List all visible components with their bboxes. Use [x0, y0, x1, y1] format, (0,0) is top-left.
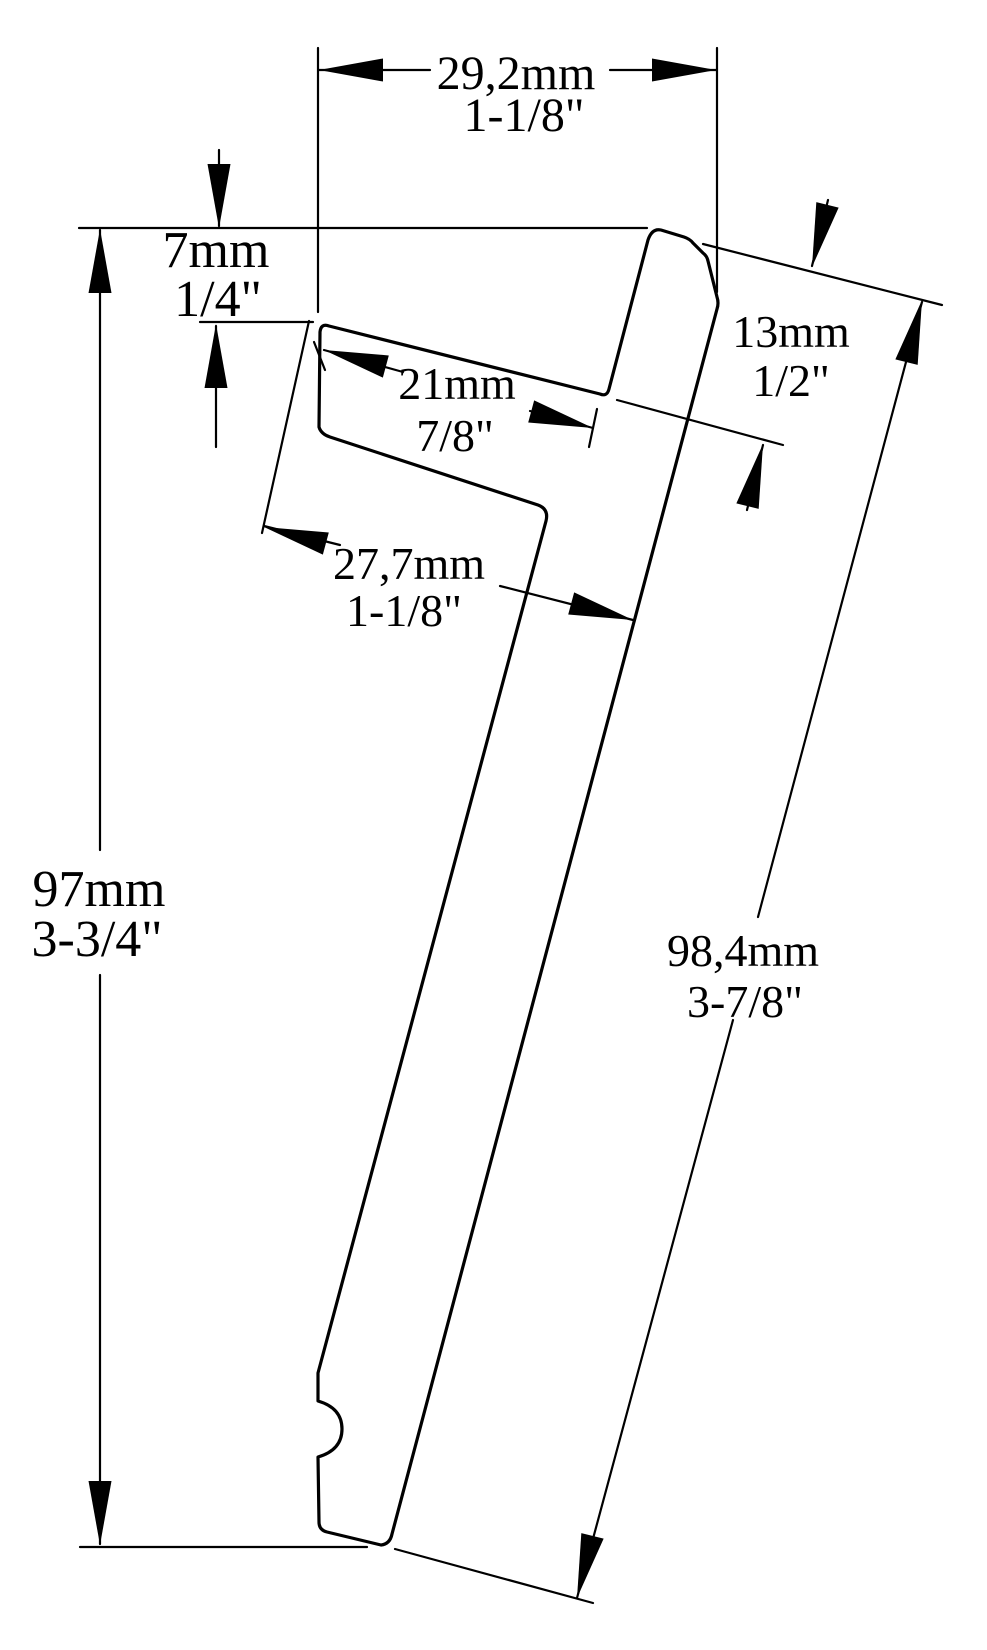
- arrowhead-head-up: [736, 441, 774, 509]
- arrowhead-slot-right: [528, 400, 596, 439]
- arrowhead-leg-top: [895, 297, 933, 365]
- profile-outline: [318, 230, 718, 1545]
- arrowhead-height-bottom: [89, 1481, 112, 1545]
- head-bottom-reference-line: [617, 400, 783, 445]
- label-slot-depth-metric: 21mm: [398, 358, 516, 409]
- dimension-leg-length: [395, 302, 922, 1603]
- arrowhead-lip-drop-down: [208, 164, 231, 228]
- label-head-thickness-metric: 13mm: [732, 306, 850, 357]
- leg-dim-line-lower: [577, 1020, 733, 1598]
- leg-bottom-extension-line: [395, 1549, 593, 1603]
- label-leg-length-imperial: 3-7/8": [687, 976, 803, 1027]
- drawing-canvas: 29,2mm 1-1/8" 7mm 1/4" 21mm 7/8" 13mm 1/…: [0, 0, 987, 1650]
- label-head-thickness-imperial: 1/2": [752, 355, 830, 406]
- label-lip-drop-imperial: 1/4": [174, 271, 262, 328]
- arrowhead-leg-bottom: [566, 1533, 604, 1601]
- arrowhead-lip-drop-up: [205, 324, 228, 388]
- label-slot-depth-imperial: 7/8": [416, 410, 494, 461]
- arrowhead-hook-left: [261, 516, 329, 555]
- label-hook-depth-imperial: 1-1/8": [346, 585, 462, 636]
- label-overall-height-imperial: 3-3/4": [32, 911, 163, 968]
- arrowhead-width-left: [319, 59, 383, 82]
- label-overall-height-metric: 97mm: [33, 861, 166, 918]
- head-top-reference-line: [703, 244, 942, 305]
- dimension-labels: 29,2mm 1-1/8" 7mm 1/4" 21mm 7/8" 13mm 1/…: [32, 47, 850, 1027]
- arrowhead-head-down: [801, 202, 839, 270]
- label-leg-length-metric: 98,4mm: [667, 925, 819, 976]
- arrowhead-hook-right: [568, 592, 636, 631]
- arrowhead-slot-left: [321, 339, 389, 378]
- arrowhead-width-right: [652, 59, 716, 82]
- label-hook-depth-metric: 27,7mm: [333, 538, 485, 589]
- arrowhead-height-top: [89, 229, 112, 293]
- technical-drawing: 29,2mm 1-1/8" 7mm 1/4" 21mm 7/8" 13mm 1/…: [0, 0, 987, 1650]
- hook-extension-left: [262, 321, 309, 533]
- label-top-width-imperial: 1-1/8": [464, 89, 585, 142]
